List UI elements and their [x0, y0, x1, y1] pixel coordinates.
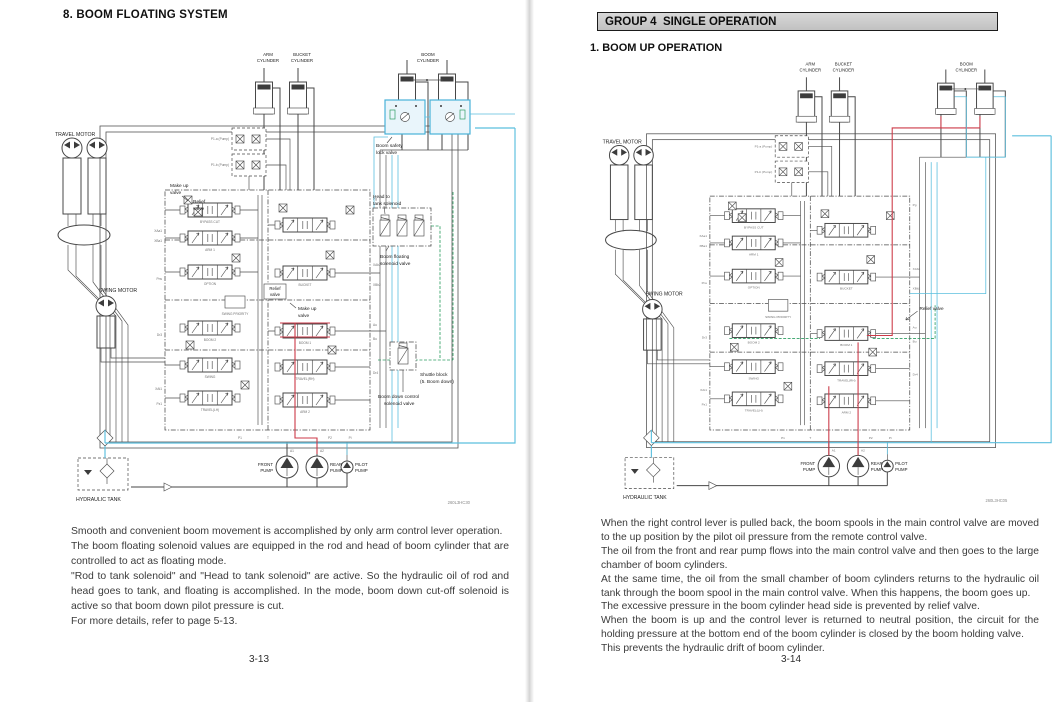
left-diagram-code: 260L3HC30: [448, 500, 471, 505]
relief-valve-callout: Relief valve: [920, 306, 944, 311]
book-spine-shadow: [525, 0, 534, 702]
svg-text:valve: valve: [298, 313, 310, 319]
relief-valve-callout-2: Relief: [269, 286, 281, 291]
manual-double-page: { "shared_diagram": { "arm_cylinder": ["…: [0, 0, 1056, 702]
boom-floating-solenoid-valve: [373, 208, 431, 246]
left-body-text: Smooth and convenient boom movement is a…: [71, 524, 509, 629]
make-up-valve-callout-2: Make up: [298, 306, 317, 312]
head-to-tank-callout: Head to: [373, 194, 390, 200]
boom-down-control-callout: Boom down control: [378, 394, 419, 400]
paragraph: When the right control lever is pulled b…: [601, 517, 1039, 545]
svg-text:valve: valve: [193, 206, 205, 212]
svg-text:lock valve: lock valve: [376, 150, 397, 156]
make-up-valve-callout-1: Make up: [170, 183, 189, 189]
boom-floating-callout: Boom floating: [380, 254, 410, 260]
paragraph: At the same time, the oil from the small…: [601, 573, 1039, 601]
paragraph: The excessive pressure in the boom cylin…: [601, 600, 1039, 614]
right-page-number: 3-14: [761, 654, 821, 665]
shuttle-block-callout: Shuttle block: [420, 372, 448, 378]
left-page-number: 3-13: [229, 654, 289, 665]
svg-text:(5. Boom down): (5. Boom down): [420, 379, 454, 385]
svg-text:valve: valve: [270, 292, 281, 297]
group-header-bar: GROUP 4 SINGLE OPERATION: [597, 12, 998, 31]
paragraph: The boom floating solenoid values are eq…: [71, 539, 509, 569]
paragraph: When the boom is up and the control leve…: [601, 614, 1039, 642]
paragraph: The oil from the front and rear pump flo…: [601, 545, 1039, 573]
left-hydraulic-diagram: Boom safety lock valve Head to tank sole…: [40, 40, 520, 510]
svg-text:solenoid valve: solenoid valve: [380, 261, 411, 267]
svg-text:solenoid valve: solenoid valve: [384, 401, 415, 407]
svg-text:tank solenoid: tank solenoid: [373, 201, 402, 207]
shuttle-block: [390, 342, 416, 370]
svg-text:valve: valve: [170, 190, 182, 196]
relief-valve-callout-1: Relief: [193, 199, 206, 205]
paragraph: "Rod to tank solenoid" and "Head to tank…: [71, 569, 509, 614]
paragraph: Smooth and convenient boom movement is a…: [71, 524, 509, 539]
paragraph: For more details, refer to page 5-13.: [71, 614, 509, 629]
boom-safety-callout: Boom safety: [376, 143, 403, 149]
right-diagram-code: 260L3HC05: [985, 498, 1008, 503]
group-header-label: GROUP 4 SINGLE OPERATION: [605, 16, 776, 28]
right-body-text: When the right control lever is pulled b…: [601, 517, 1039, 656]
right-hydraulic-diagram: Relief valve 260L3HC05: [588, 50, 1056, 508]
left-page-title: 8. BOOM FLOATING SYSTEM: [63, 9, 228, 21]
